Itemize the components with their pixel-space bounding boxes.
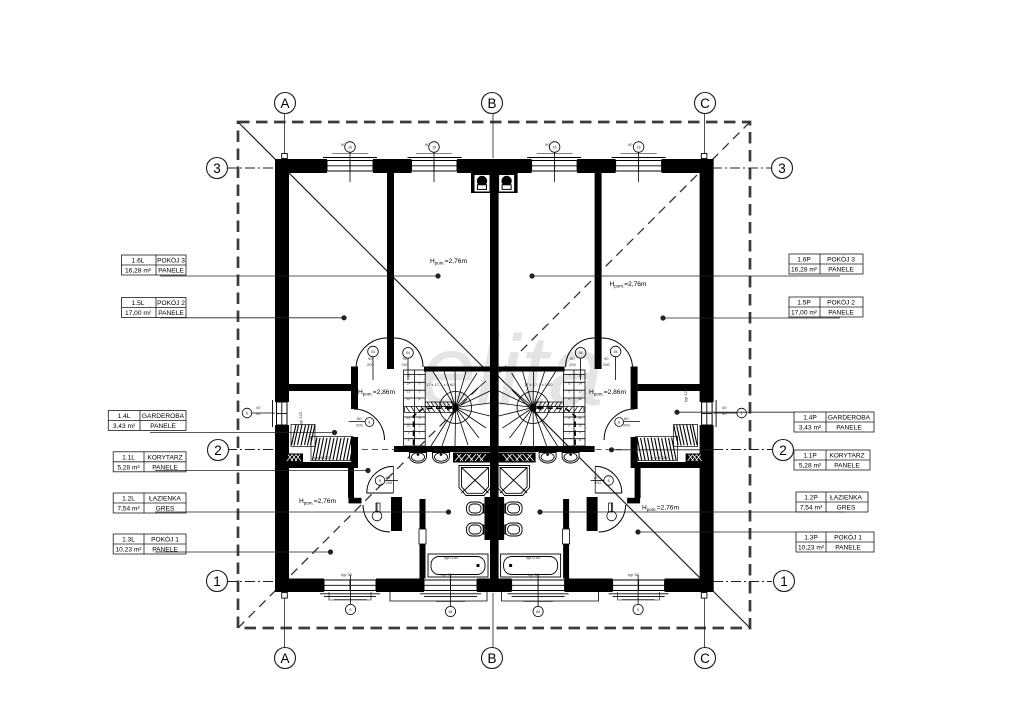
svg-text:PANELE: PANELE bbox=[158, 310, 184, 317]
svg-text:8: 8 bbox=[408, 438, 410, 442]
svg-text:15: 15 bbox=[432, 145, 436, 149]
svg-text:typ 120: typ 120 bbox=[683, 388, 688, 402]
svg-text:3: 3 bbox=[568, 416, 570, 420]
svg-text:2: 2 bbox=[214, 443, 222, 458]
svg-text:POKÓJ 2: POKÓJ 2 bbox=[157, 298, 185, 307]
svg-text:13: 13 bbox=[407, 389, 411, 393]
svg-text:8: 8 bbox=[579, 438, 581, 442]
svg-text:9: 9 bbox=[579, 431, 581, 435]
svg-text:C: C bbox=[700, 96, 710, 111]
svg-text:9: 9 bbox=[637, 608, 639, 612]
svg-text:A: A bbox=[280, 96, 289, 111]
svg-text:15: 15 bbox=[553, 145, 557, 149]
svg-text:64: 64 bbox=[449, 610, 453, 614]
svg-text:3,43 m²: 3,43 m² bbox=[799, 425, 822, 432]
svg-text:typ 120: typ 120 bbox=[298, 411, 303, 425]
svg-text:90: 90 bbox=[425, 142, 430, 147]
svg-text:POKÓJ 3: POKÓJ 3 bbox=[157, 256, 185, 265]
svg-text:10,23 m²: 10,23 m² bbox=[115, 547, 142, 554]
svg-text:200: 200 bbox=[356, 423, 363, 428]
svg-text:4: 4 bbox=[568, 397, 570, 401]
svg-text:04: 04 bbox=[614, 350, 618, 354]
svg-text:GARDEROBA: GARDEROBA bbox=[828, 415, 871, 422]
svg-text:17 x 17,1 x 0,60: 17 x 17,1 x 0,60 bbox=[426, 382, 455, 387]
svg-text:15: 15 bbox=[407, 374, 411, 378]
svg-text:5,28 m²: 5,28 m² bbox=[799, 463, 822, 470]
svg-text:16,28 m²: 16,28 m² bbox=[125, 268, 152, 275]
svg-text:200: 200 bbox=[386, 480, 393, 485]
svg-text:typ 90: typ 90 bbox=[628, 572, 640, 577]
svg-text:16: 16 bbox=[637, 145, 641, 149]
svg-text:90: 90 bbox=[628, 142, 633, 147]
svg-text:17,00 m²: 17,00 m² bbox=[125, 310, 152, 317]
svg-text:64: 64 bbox=[536, 610, 540, 614]
svg-text:200: 200 bbox=[594, 480, 601, 485]
svg-text:8: 8 bbox=[618, 420, 620, 424]
svg-text:1: 1 bbox=[568, 431, 570, 435]
svg-text:40: 40 bbox=[722, 405, 727, 410]
svg-text:8: 8 bbox=[369, 420, 371, 424]
svg-text:POKÓJ 1: POKÓJ 1 bbox=[151, 535, 179, 544]
svg-text:9: 9 bbox=[408, 431, 410, 435]
svg-text:PANELE: PANELE bbox=[152, 464, 178, 471]
svg-text:Hpom.=2,86m: Hpom.=2,86m bbox=[358, 389, 395, 397]
svg-text:16,28 m²: 16,28 m² bbox=[791, 267, 818, 274]
svg-text:GRES: GRES bbox=[837, 505, 856, 512]
svg-text:PANELE: PANELE bbox=[828, 310, 854, 317]
svg-text:17,00 m²: 17,00 m² bbox=[791, 310, 818, 317]
svg-text:PANELE: PANELE bbox=[835, 545, 861, 552]
svg-text:11: 11 bbox=[578, 416, 582, 420]
svg-text:3: 3 bbox=[419, 416, 421, 420]
svg-text:typ 90: typ 90 bbox=[441, 572, 453, 577]
svg-text:7,54 m²: 7,54 m² bbox=[800, 505, 823, 512]
svg-text:PANELE: PANELE bbox=[834, 463, 860, 470]
svg-text:3: 3 bbox=[213, 161, 221, 176]
svg-text:90: 90 bbox=[403, 356, 408, 361]
svg-text:6: 6 bbox=[246, 411, 248, 415]
svg-text:1: 1 bbox=[780, 574, 788, 589]
svg-text:40: 40 bbox=[256, 405, 261, 410]
svg-text:1.3L: 1.3L bbox=[122, 537, 135, 544]
svg-text:GARDEROBA: GARDEROBA bbox=[142, 413, 185, 420]
svg-text:200: 200 bbox=[623, 423, 630, 428]
svg-text:13: 13 bbox=[578, 389, 582, 393]
svg-text:1: 1 bbox=[213, 574, 221, 589]
svg-text:7: 7 bbox=[568, 374, 570, 378]
svg-text:B: B bbox=[487, 651, 496, 666]
svg-text:9: 9 bbox=[350, 608, 352, 612]
svg-text:90: 90 bbox=[256, 411, 261, 416]
svg-text:6: 6 bbox=[741, 411, 743, 415]
svg-text:1.4P: 1.4P bbox=[803, 415, 817, 422]
svg-text:90: 90 bbox=[545, 142, 550, 147]
svg-text:PANELE: PANELE bbox=[158, 268, 184, 275]
svg-text:10: 10 bbox=[578, 423, 582, 427]
svg-text:1.4L: 1.4L bbox=[118, 413, 131, 420]
svg-text:PANELE: PANELE bbox=[836, 425, 862, 432]
svg-text:14: 14 bbox=[407, 381, 411, 385]
svg-text:04: 04 bbox=[406, 351, 410, 355]
svg-text:POKÓJ 2: POKÓJ 2 bbox=[827, 298, 855, 307]
svg-text:1.1L: 1.1L bbox=[122, 454, 135, 461]
svg-text:7: 7 bbox=[419, 374, 421, 378]
svg-text:5,28 m²: 5,28 m² bbox=[117, 464, 140, 471]
svg-text:KORYTARZ: KORYTARZ bbox=[147, 454, 182, 461]
svg-text:typ=150: typ=150 bbox=[526, 555, 541, 560]
svg-text:10,23 m²: 10,23 m² bbox=[798, 545, 825, 552]
svg-text:1.2L: 1.2L bbox=[122, 496, 135, 503]
svg-text:ŁAZIENKA: ŁAZIENKA bbox=[149, 496, 181, 503]
svg-text:80: 80 bbox=[357, 416, 362, 421]
svg-text:POKÓJ 3: POKÓJ 3 bbox=[827, 255, 855, 264]
svg-text:C: C bbox=[700, 651, 710, 666]
svg-text:2x sz 60/200: 2x sz 60/200 bbox=[312, 456, 330, 460]
svg-text:typ 90: typ 90 bbox=[528, 572, 540, 577]
svg-text:200: 200 bbox=[367, 362, 374, 367]
svg-text:1: 1 bbox=[419, 431, 421, 435]
svg-text:6: 6 bbox=[379, 479, 381, 483]
svg-text:POKÓJ 1: POKÓJ 1 bbox=[834, 533, 862, 542]
svg-text:1.6P: 1.6P bbox=[797, 257, 811, 264]
svg-text:A: A bbox=[280, 651, 289, 666]
svg-text:200: 200 bbox=[569, 362, 576, 367]
svg-text:Hpom.=2,76m: Hpom.=2,76m bbox=[299, 498, 336, 506]
svg-text:12: 12 bbox=[578, 397, 582, 401]
svg-text:6: 6 bbox=[419, 381, 421, 385]
svg-text:1.2P: 1.2P bbox=[804, 495, 818, 502]
svg-text:2: 2 bbox=[568, 423, 570, 427]
svg-text:90: 90 bbox=[722, 411, 727, 416]
svg-text:Hpom.=2,76m: Hpom.=2,76m bbox=[610, 281, 647, 289]
svg-text:14: 14 bbox=[578, 381, 582, 385]
svg-text:GRES: GRES bbox=[156, 506, 175, 513]
svg-text:15: 15 bbox=[578, 374, 582, 378]
svg-text:90: 90 bbox=[570, 356, 575, 361]
svg-text:4: 4 bbox=[419, 397, 421, 401]
svg-text:200: 200 bbox=[603, 362, 610, 367]
svg-text:2: 2 bbox=[779, 443, 787, 458]
svg-text:04: 04 bbox=[579, 351, 583, 355]
svg-text:1.1P: 1.1P bbox=[803, 453, 817, 460]
svg-text:B: B bbox=[487, 96, 496, 111]
svg-text:5: 5 bbox=[568, 389, 570, 393]
svg-text:1.6L: 1.6L bbox=[132, 258, 145, 265]
svg-text:10: 10 bbox=[407, 423, 411, 427]
svg-text:200: 200 bbox=[402, 362, 409, 367]
svg-text:04: 04 bbox=[371, 350, 375, 354]
svg-text:1.5P: 1.5P bbox=[797, 300, 811, 307]
svg-text:6: 6 bbox=[608, 479, 610, 483]
svg-text:90: 90 bbox=[604, 356, 609, 361]
svg-text:90: 90 bbox=[341, 142, 346, 147]
svg-text:typ 90: typ 90 bbox=[341, 572, 353, 577]
svg-text:12: 12 bbox=[407, 397, 411, 401]
svg-text:3: 3 bbox=[778, 161, 786, 176]
svg-text:80: 80 bbox=[624, 416, 629, 421]
svg-text:2x sz 60/200: 2x sz 60/200 bbox=[650, 456, 668, 460]
svg-text:2: 2 bbox=[419, 423, 421, 427]
svg-text:5: 5 bbox=[419, 389, 421, 393]
svg-text:PANELE: PANELE bbox=[150, 423, 176, 430]
svg-text:Hpom.=2,76m: Hpom.=2,76m bbox=[642, 505, 679, 513]
svg-text:3,43 m²: 3,43 m² bbox=[113, 423, 136, 430]
svg-text:ŁAZIENKA: ŁAZIENKA bbox=[830, 495, 862, 502]
svg-text:typ=150: typ=150 bbox=[444, 555, 459, 560]
svg-text:7,54 m²: 7,54 m² bbox=[117, 506, 140, 513]
svg-text:6: 6 bbox=[568, 381, 570, 385]
svg-text:16: 16 bbox=[348, 145, 352, 149]
svg-text:11: 11 bbox=[407, 416, 411, 420]
svg-text:PANELE: PANELE bbox=[828, 267, 854, 274]
svg-text:KORYTARZ: KORYTARZ bbox=[829, 453, 864, 460]
svg-text:90: 90 bbox=[368, 356, 373, 361]
svg-text:1.3P: 1.3P bbox=[804, 535, 818, 542]
svg-text:1.5L: 1.5L bbox=[132, 300, 145, 307]
svg-text:17 x 17,1 x 0,60: 17 x 17,1 x 0,60 bbox=[524, 382, 553, 387]
svg-text:PANELE: PANELE bbox=[152, 547, 178, 554]
svg-text:Hpom.=2,76m: Hpom.=2,76m bbox=[430, 258, 467, 266]
